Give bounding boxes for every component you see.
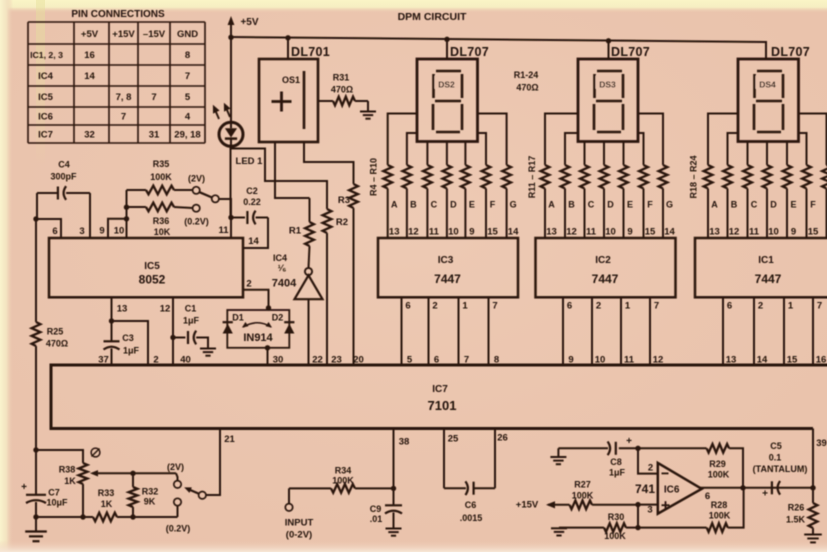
svg-text:4: 4 bbox=[185, 112, 191, 123]
svg-text:1: 1 bbox=[462, 301, 468, 312]
svg-text:(2V): (2V) bbox=[167, 462, 184, 472]
svg-text:R31: R31 bbox=[333, 73, 350, 83]
svg-text:D: D bbox=[770, 200, 777, 210]
svg-text:7: 7 bbox=[492, 301, 497, 312]
svg-text:7404: 7404 bbox=[272, 278, 297, 290]
svg-text:7101: 7101 bbox=[428, 398, 457, 413]
svg-text:¹⁄₆: ¹⁄₆ bbox=[278, 263, 287, 273]
svg-text:R30: R30 bbox=[608, 512, 625, 522]
svg-text:14: 14 bbox=[248, 236, 259, 247]
svg-text:IC5: IC5 bbox=[38, 92, 54, 103]
svg-text:DPM CIRCUIT: DPM CIRCUIT bbox=[398, 11, 467, 23]
svg-text:15: 15 bbox=[487, 227, 498, 238]
svg-text:7: 7 bbox=[151, 92, 156, 103]
svg-text:29, 18: 29, 18 bbox=[174, 130, 200, 141]
svg-text:R38: R38 bbox=[59, 465, 76, 475]
svg-text:R2: R2 bbox=[336, 217, 348, 228]
svg-text:7447: 7447 bbox=[434, 272, 461, 286]
svg-text:R4 – R10: R4 – R10 bbox=[369, 158, 379, 196]
svg-text:.0015: .0015 bbox=[460, 513, 483, 523]
svg-text:13: 13 bbox=[709, 227, 720, 238]
svg-text:F: F bbox=[810, 200, 816, 210]
svg-text:38: 38 bbox=[399, 437, 410, 448]
svg-text:F: F bbox=[490, 200, 496, 210]
svg-text:B: B bbox=[410, 200, 417, 210]
svg-text:15: 15 bbox=[808, 227, 819, 238]
svg-text:470Ω: 470Ω bbox=[516, 83, 538, 93]
svg-text:IC7: IC7 bbox=[432, 384, 448, 395]
svg-text:R1: R1 bbox=[289, 226, 302, 237]
svg-text:IC6: IC6 bbox=[664, 485, 680, 496]
svg-text:25: 25 bbox=[448, 434, 459, 445]
svg-text:6: 6 bbox=[405, 301, 410, 312]
svg-text:1K: 1K bbox=[101, 499, 113, 509]
svg-text:2: 2 bbox=[758, 301, 763, 312]
svg-text:+: + bbox=[626, 436, 632, 447]
svg-text:(0.2V): (0.2V) bbox=[166, 524, 191, 534]
svg-text:+15V: +15V bbox=[112, 29, 135, 40]
svg-text:1μF: 1μF bbox=[123, 346, 140, 356]
svg-text:B: B bbox=[568, 200, 575, 210]
svg-text:14: 14 bbox=[84, 71, 95, 82]
svg-text:1K: 1K bbox=[64, 476, 76, 486]
svg-text:+5V: +5V bbox=[81, 29, 99, 40]
svg-text:14: 14 bbox=[508, 227, 519, 238]
svg-text:IC3: IC3 bbox=[438, 255, 454, 266]
svg-text:D1: D1 bbox=[232, 313, 244, 323]
svg-text:PIN CONNECTIONS: PIN CONNECTIONS bbox=[71, 9, 165, 20]
svg-text:C9: C9 bbox=[370, 504, 382, 514]
svg-text:C: C bbox=[588, 200, 595, 210]
svg-text:R1-24: R1-24 bbox=[514, 70, 539, 80]
svg-text:32: 32 bbox=[84, 130, 95, 141]
svg-text:11: 11 bbox=[429, 227, 440, 238]
svg-text:R35: R35 bbox=[153, 159, 170, 169]
svg-text:(TANTALUM): (TANTALUM) bbox=[753, 464, 808, 474]
svg-text:DS3: DS3 bbox=[599, 80, 616, 90]
svg-text:R32: R32 bbox=[142, 487, 159, 497]
svg-text:100K: 100K bbox=[708, 470, 730, 480]
svg-text:6: 6 bbox=[52, 226, 57, 237]
svg-text:1: 1 bbox=[625, 301, 631, 312]
svg-text:A: A bbox=[711, 200, 718, 210]
svg-text:100K: 100K bbox=[572, 491, 594, 501]
svg-text:11: 11 bbox=[749, 227, 760, 238]
svg-text:R25: R25 bbox=[47, 327, 64, 337]
svg-text:C2: C2 bbox=[246, 186, 258, 196]
svg-text:+5V: +5V bbox=[240, 17, 258, 28]
svg-text:R26: R26 bbox=[788, 503, 805, 513]
svg-text:1: 1 bbox=[788, 301, 794, 312]
svg-text:9: 9 bbox=[99, 226, 104, 237]
svg-text:IC1: IC1 bbox=[758, 255, 774, 266]
svg-text:300pF: 300pF bbox=[50, 172, 77, 182]
svg-text:+: + bbox=[21, 482, 27, 493]
svg-text:26: 26 bbox=[497, 433, 508, 444]
svg-text:C: C bbox=[751, 200, 758, 210]
svg-text:R36: R36 bbox=[153, 216, 170, 226]
svg-text:100K: 100K bbox=[150, 172, 172, 182]
svg-text:15: 15 bbox=[645, 227, 656, 238]
svg-text:470Ω: 470Ω bbox=[46, 339, 68, 349]
svg-text:7: 7 bbox=[185, 71, 190, 82]
svg-text:E: E bbox=[469, 200, 475, 210]
svg-text:DL707: DL707 bbox=[450, 45, 489, 59]
svg-text:10: 10 bbox=[114, 226, 125, 237]
svg-text:+15V: +15V bbox=[516, 500, 539, 511]
svg-text:6: 6 bbox=[727, 301, 732, 312]
svg-text:12: 12 bbox=[160, 304, 171, 315]
svg-text:(0.2V): (0.2V) bbox=[184, 217, 209, 227]
svg-text:100K: 100K bbox=[709, 511, 731, 521]
svg-text:31: 31 bbox=[149, 130, 160, 141]
svg-text:–15V: –15V bbox=[143, 29, 166, 40]
svg-text:39: 39 bbox=[816, 438, 827, 449]
svg-text:G: G bbox=[666, 200, 673, 210]
svg-text:2: 2 bbox=[246, 279, 251, 290]
svg-text:0.22: 0.22 bbox=[243, 197, 261, 207]
svg-text:IC5: IC5 bbox=[144, 261, 160, 272]
svg-text:100K: 100K bbox=[332, 476, 354, 486]
svg-text:10K: 10K bbox=[154, 227, 171, 237]
svg-text:3: 3 bbox=[647, 505, 652, 516]
svg-text:IC4: IC4 bbox=[38, 71, 54, 82]
svg-text:DL707: DL707 bbox=[611, 45, 650, 59]
svg-text:IN914: IN914 bbox=[243, 332, 273, 344]
svg-text:DS2: DS2 bbox=[438, 80, 455, 90]
svg-text:IC7: IC7 bbox=[38, 130, 53, 141]
svg-text:12: 12 bbox=[408, 227, 419, 238]
svg-text:13: 13 bbox=[546, 227, 557, 238]
svg-text:13: 13 bbox=[389, 227, 400, 238]
svg-text:470Ω: 470Ω bbox=[331, 85, 353, 95]
svg-text:IC1, 2, 3: IC1, 2, 3 bbox=[30, 50, 63, 60]
svg-text:+: + bbox=[762, 489, 768, 500]
svg-text:C8: C8 bbox=[610, 457, 622, 467]
svg-text:B: B bbox=[731, 200, 738, 210]
svg-text:1.5K: 1.5K bbox=[786, 515, 806, 525]
svg-text:F: F bbox=[647, 200, 653, 210]
svg-text:LED 1: LED 1 bbox=[236, 156, 264, 167]
svg-text:9: 9 bbox=[627, 227, 632, 238]
svg-text:G: G bbox=[510, 200, 517, 210]
svg-text:7: 7 bbox=[654, 301, 659, 312]
svg-text:1μF: 1μF bbox=[609, 468, 626, 478]
svg-text:E: E bbox=[790, 200, 796, 210]
svg-text:(0-2V): (0-2V) bbox=[286, 530, 312, 541]
svg-text:14: 14 bbox=[664, 227, 675, 238]
svg-text:R33: R33 bbox=[98, 488, 115, 498]
svg-text:C3: C3 bbox=[122, 333, 134, 343]
svg-text:C7: C7 bbox=[48, 488, 60, 498]
svg-text:16: 16 bbox=[84, 50, 95, 61]
svg-text:C: C bbox=[431, 200, 438, 210]
svg-text:C1: C1 bbox=[185, 304, 197, 314]
svg-text:.01: .01 bbox=[370, 514, 383, 524]
svg-text:6: 6 bbox=[705, 491, 710, 502]
svg-text:7447: 7447 bbox=[755, 272, 782, 286]
svg-text:DS4: DS4 bbox=[759, 80, 776, 90]
svg-text:D: D bbox=[607, 200, 614, 210]
svg-text:9: 9 bbox=[791, 227, 796, 238]
svg-text:7447: 7447 bbox=[592, 272, 619, 286]
svg-text:3: 3 bbox=[79, 226, 84, 237]
svg-text:(2V): (2V) bbox=[188, 174, 205, 184]
svg-text:DL701: DL701 bbox=[291, 45, 330, 59]
svg-text:GND: GND bbox=[177, 29, 198, 40]
svg-text:10μF: 10μF bbox=[46, 498, 68, 508]
svg-text:13: 13 bbox=[117, 304, 128, 315]
svg-text:R29: R29 bbox=[709, 459, 726, 469]
svg-text:INPUT: INPUT bbox=[285, 518, 314, 529]
svg-text:10: 10 bbox=[448, 227, 459, 238]
svg-text:2: 2 bbox=[596, 301, 601, 312]
svg-text:2: 2 bbox=[432, 301, 437, 312]
svg-text:D: D bbox=[450, 200, 457, 210]
svg-text:R34: R34 bbox=[335, 466, 352, 476]
svg-text:7: 7 bbox=[817, 301, 822, 312]
svg-text:R11 – R17: R11 – R17 bbox=[527, 156, 537, 199]
svg-text:OS1: OS1 bbox=[282, 75, 300, 85]
svg-text:D2: D2 bbox=[272, 313, 284, 323]
svg-text:10: 10 bbox=[768, 227, 779, 238]
svg-text:R28: R28 bbox=[711, 500, 728, 510]
svg-text:1μF: 1μF bbox=[183, 316, 200, 326]
svg-text:C4: C4 bbox=[58, 160, 70, 170]
svg-text:7, 8: 7, 8 bbox=[116, 92, 132, 103]
svg-text:A: A bbox=[548, 200, 555, 210]
svg-text:9: 9 bbox=[469, 227, 474, 238]
svg-text:IC6: IC6 bbox=[38, 112, 53, 123]
svg-text:DL707: DL707 bbox=[771, 45, 810, 59]
svg-text:12: 12 bbox=[566, 227, 577, 238]
svg-text:11: 11 bbox=[218, 225, 229, 236]
svg-text:2: 2 bbox=[648, 463, 653, 474]
svg-text:R3: R3 bbox=[338, 195, 350, 206]
svg-text:8052: 8052 bbox=[139, 273, 166, 287]
svg-text:11: 11 bbox=[586, 227, 597, 238]
svg-text:0.1: 0.1 bbox=[769, 453, 782, 463]
svg-text:100K: 100K bbox=[604, 531, 626, 541]
svg-text:7: 7 bbox=[121, 112, 126, 123]
svg-text:6: 6 bbox=[567, 301, 572, 312]
svg-text:12: 12 bbox=[729, 227, 740, 238]
svg-text:8: 8 bbox=[185, 50, 190, 61]
svg-text:9K: 9K bbox=[144, 497, 156, 507]
svg-text:E: E bbox=[627, 200, 633, 210]
svg-text:IC2: IC2 bbox=[595, 255, 611, 266]
svg-text:R27: R27 bbox=[574, 480, 591, 490]
svg-text:IC4: IC4 bbox=[273, 253, 287, 263]
svg-text:C6: C6 bbox=[465, 500, 477, 510]
svg-text:R18 – R24: R18 – R24 bbox=[689, 155, 699, 198]
svg-text:A: A bbox=[391, 200, 398, 210]
svg-text:10: 10 bbox=[605, 227, 616, 238]
svg-text:21: 21 bbox=[224, 434, 235, 445]
svg-text:C5: C5 bbox=[770, 441, 782, 451]
svg-text:741: 741 bbox=[635, 482, 655, 496]
svg-text:5: 5 bbox=[185, 92, 191, 103]
